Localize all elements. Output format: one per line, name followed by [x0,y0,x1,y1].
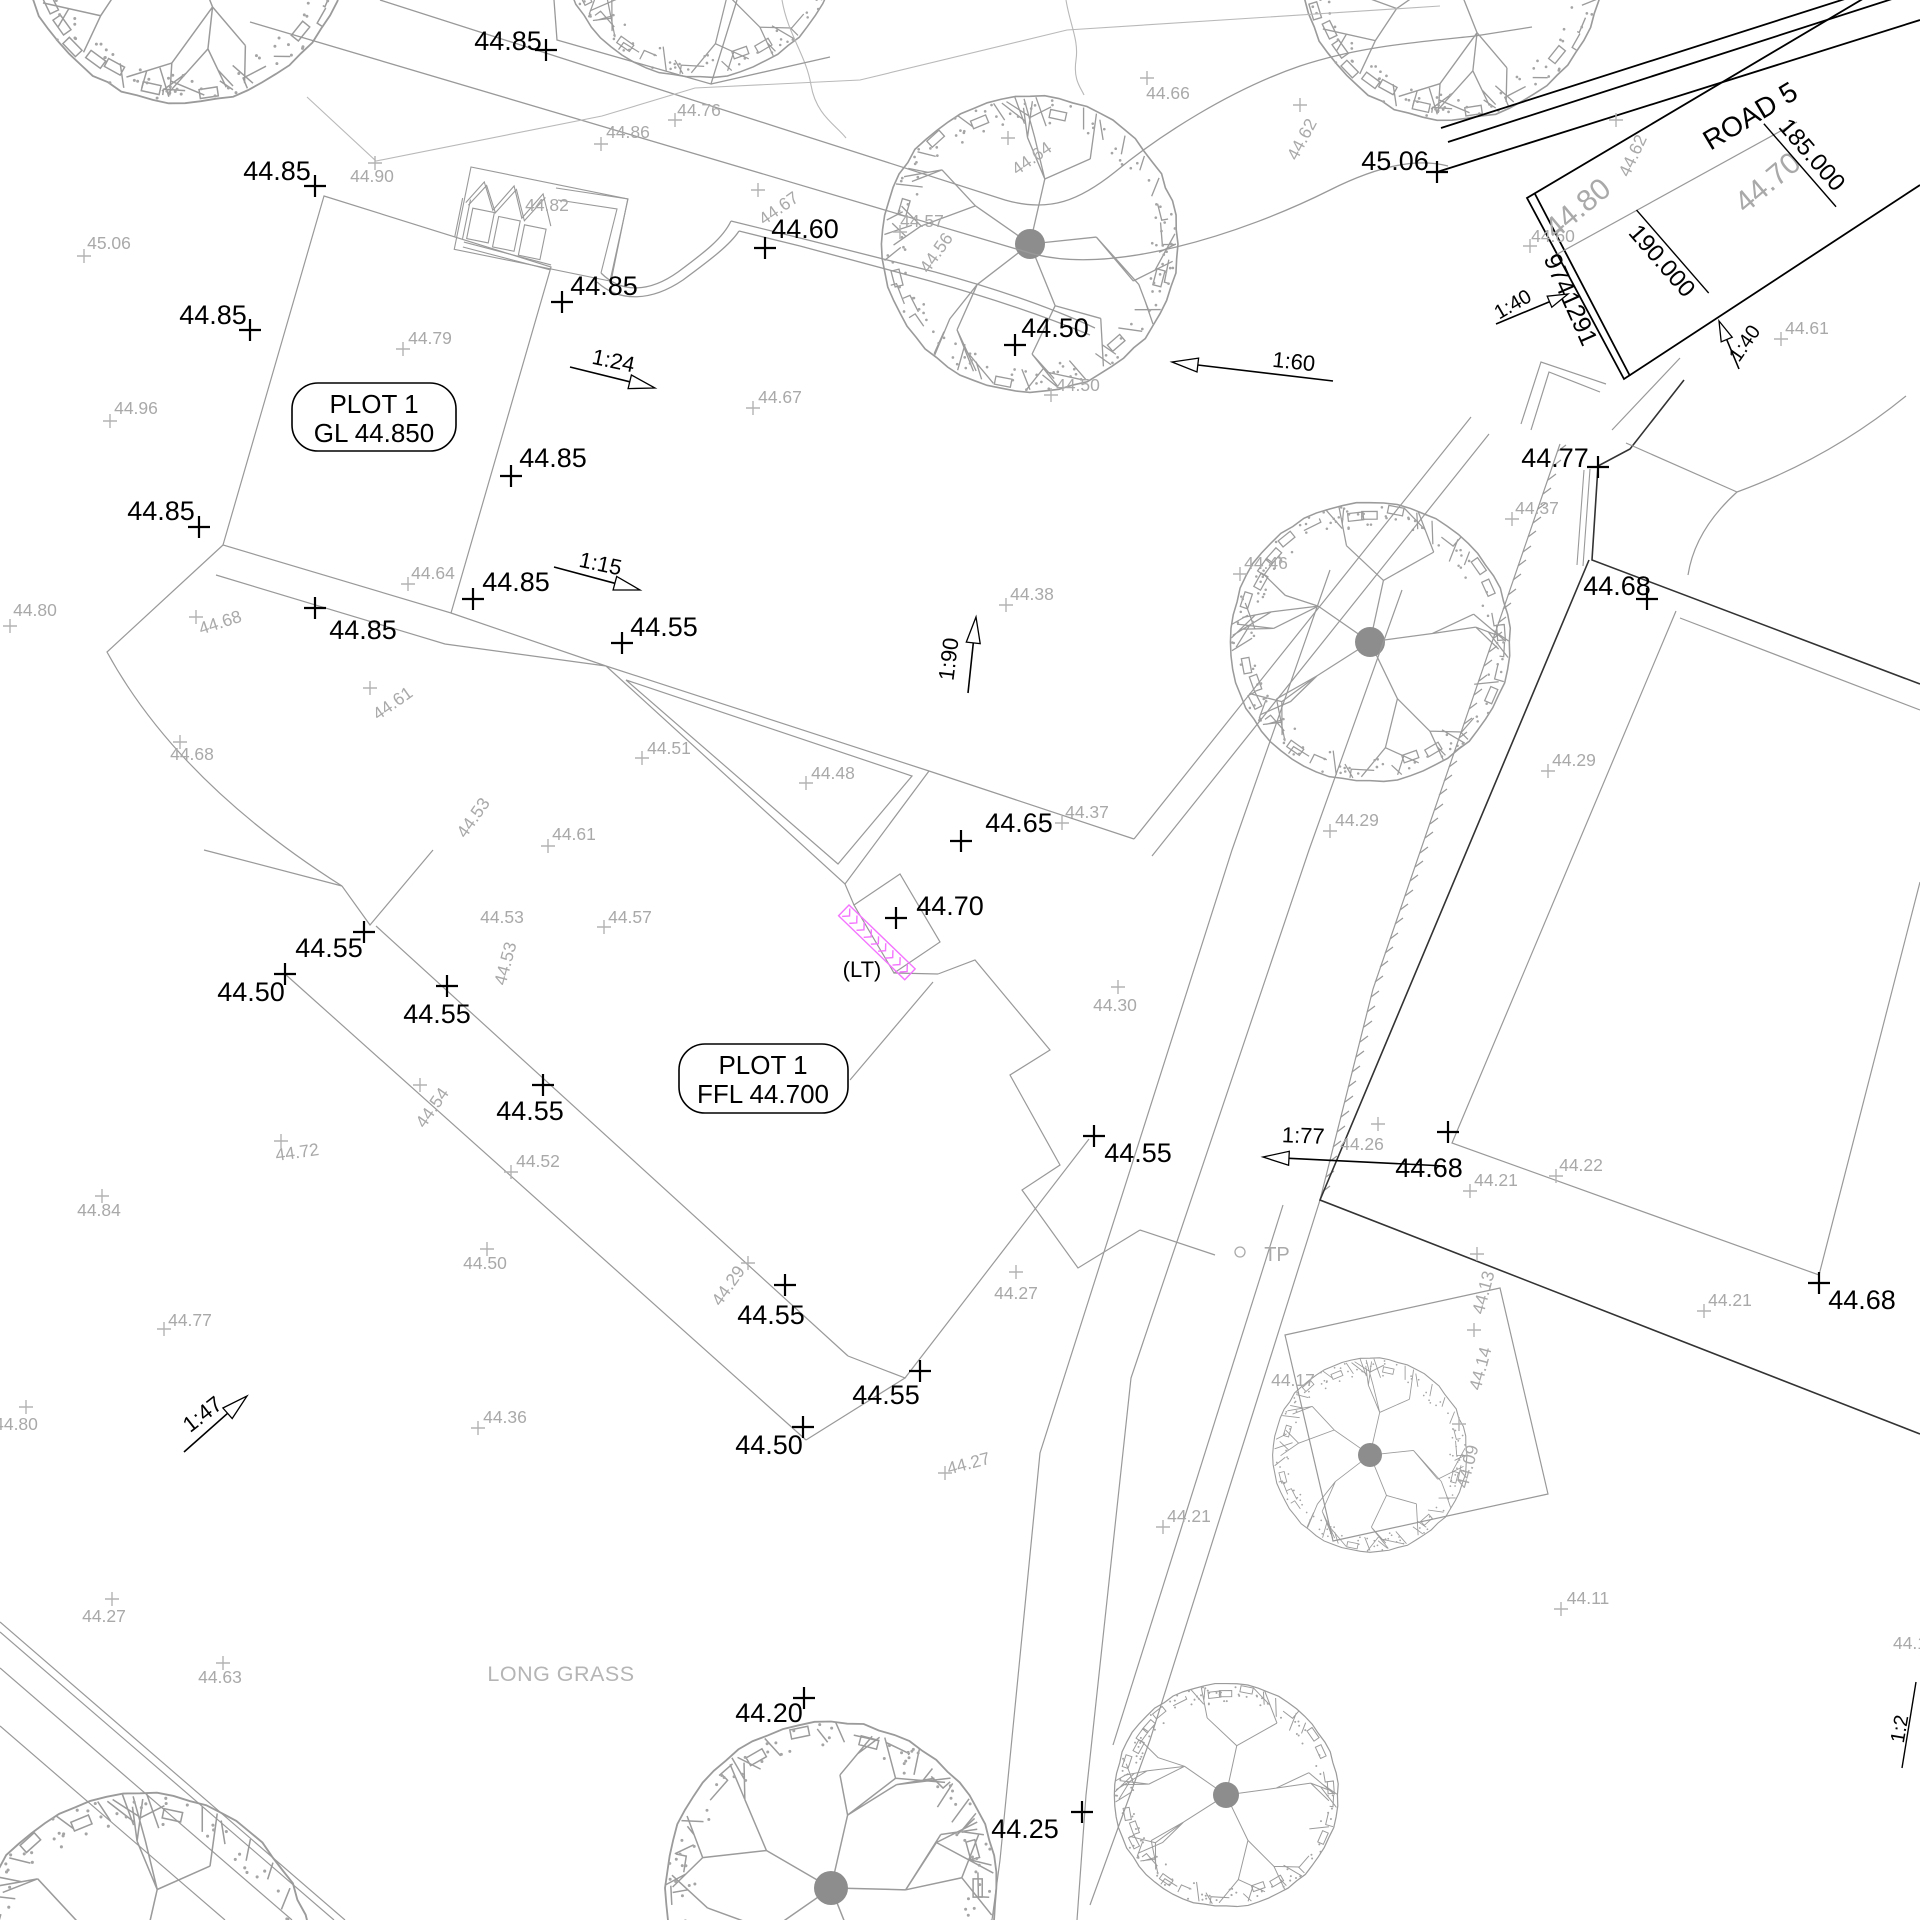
svg-text:44.55: 44.55 [1104,1138,1172,1168]
svg-text:44.50: 44.50 [463,1253,507,1273]
svg-text:44.68: 44.68 [1395,1153,1463,1183]
svg-text:44.85: 44.85 [570,271,638,301]
svg-text:PLOT 1: PLOT 1 [718,1050,807,1080]
svg-text:(LT): (LT) [843,957,882,982]
svg-text:44.68: 44.68 [1828,1285,1896,1315]
svg-text:44.55: 44.55 [295,933,363,963]
svg-text:44.37: 44.37 [1065,802,1109,822]
svg-text:44.85: 44.85 [179,300,247,330]
svg-text:44.27: 44.27 [82,1606,126,1626]
svg-text:44.57: 44.57 [900,211,944,231]
svg-text:44.26: 44.26 [1340,1134,1384,1154]
svg-text:44.30: 44.30 [1093,995,1137,1015]
svg-text:44.55: 44.55 [737,1300,805,1330]
svg-text:45.06: 45.06 [1361,146,1429,176]
svg-text:44.27: 44.27 [994,1283,1038,1303]
svg-text:1:90: 1:90 [934,636,964,682]
svg-text:FFL 44.700: FFL 44.700 [697,1079,829,1109]
svg-text:44.77: 44.77 [168,1310,212,1330]
svg-text:44.76: 44.76 [677,100,721,120]
svg-text:44.46: 44.46 [1244,553,1288,573]
svg-text:44.17: 44.17 [1271,1370,1315,1390]
svg-text:44.66: 44.66 [1146,83,1190,103]
svg-text:LONG GRASS: LONG GRASS [487,1662,634,1686]
svg-text:44.57: 44.57 [608,907,652,927]
svg-text:44.20: 44.20 [735,1698,803,1728]
svg-text:44.85: 44.85 [243,156,311,186]
svg-text:GL 44.850: GL 44.850 [314,418,434,448]
svg-text:44.84: 44.84 [77,1200,121,1220]
svg-text:44.61: 44.61 [552,824,596,844]
svg-text:44.68: 44.68 [170,744,214,764]
svg-text:44.96: 44.96 [114,398,158,418]
svg-text:44.63: 44.63 [198,1667,242,1687]
svg-text:44.50: 44.50 [217,977,285,1007]
svg-text:44.79: 44.79 [408,328,452,348]
svg-text:44.53: 44.53 [480,907,524,927]
svg-text:44.65: 44.65 [985,808,1053,838]
svg-text:PLOT 1: PLOT 1 [329,389,418,419]
svg-text:44.22: 44.22 [1559,1155,1603,1175]
svg-text:44.51: 44.51 [647,738,691,758]
svg-text:44.68: 44.68 [1583,571,1651,601]
svg-text:44.38: 44.38 [1010,584,1054,604]
svg-text:44.86: 44.86 [606,122,650,142]
svg-text:44.67: 44.67 [758,387,802,407]
svg-text:44.50: 44.50 [1021,313,1089,343]
svg-text:44.21: 44.21 [1708,1290,1752,1310]
svg-text:44.21: 44.21 [1474,1170,1518,1190]
svg-text:44.50: 44.50 [1056,375,1100,395]
svg-text:44.1: 44.1 [1893,1633,1920,1653]
svg-text:44.70: 44.70 [916,891,984,921]
svg-text:44.85: 44.85 [127,496,195,526]
svg-text:44.29: 44.29 [1335,810,1379,830]
svg-text:44.64: 44.64 [411,563,455,583]
svg-text:44.37: 44.37 [1515,498,1559,518]
svg-text:44.80: 44.80 [0,1414,38,1434]
svg-text:44.85: 44.85 [474,26,542,56]
svg-text:44.29: 44.29 [1552,750,1596,770]
svg-text:44.36: 44.36 [483,1407,527,1427]
svg-text:44.11: 44.11 [1567,1588,1610,1608]
svg-text:44.82: 44.82 [525,195,569,215]
svg-text:44.77: 44.77 [1521,443,1589,473]
svg-text:44.25: 44.25 [991,1814,1059,1844]
svg-text:44.85: 44.85 [482,567,550,597]
svg-text:44.55: 44.55 [403,999,471,1029]
svg-text:44.85: 44.85 [519,443,587,473]
svg-text:44.55: 44.55 [496,1096,564,1126]
svg-text:44.21: 44.21 [1167,1506,1211,1526]
svg-text:44.52: 44.52 [516,1151,560,1171]
svg-text:45.06: 45.06 [87,233,131,253]
svg-text:1:60: 1:60 [1271,347,1316,376]
svg-text:44.90: 44.90 [350,166,394,186]
svg-text:44.55: 44.55 [852,1380,920,1410]
svg-text:44.55: 44.55 [630,612,698,642]
svg-text:44.85: 44.85 [329,615,397,645]
svg-text:1:77: 1:77 [1281,1122,1325,1148]
svg-text:TP: TP [1264,1244,1290,1266]
svg-text:44.48: 44.48 [811,763,855,783]
svg-text:44.50: 44.50 [735,1430,803,1460]
svg-text:44.80: 44.80 [13,600,57,620]
svg-text:44.60: 44.60 [771,214,839,244]
svg-text:44.61: 44.61 [1785,318,1829,338]
